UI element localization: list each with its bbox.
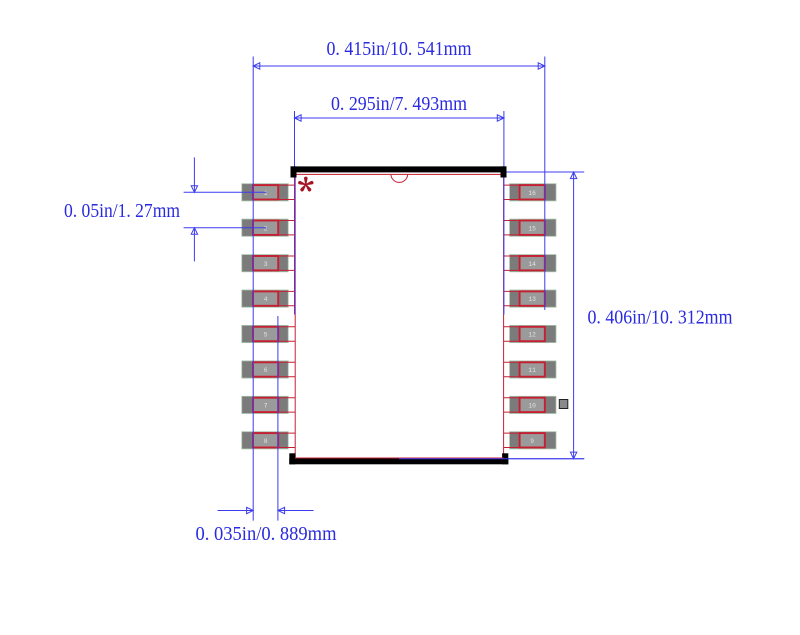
svg-text:15: 15	[528, 225, 536, 232]
svg-text:8: 8	[264, 438, 268, 445]
svg-text:4: 4	[264, 296, 268, 303]
svg-text:10: 10	[528, 403, 536, 410]
svg-text:13: 13	[528, 296, 536, 303]
svg-text:6: 6	[264, 367, 268, 374]
svg-text:0. 406in/10. 312mm: 0. 406in/10. 312mm	[588, 307, 733, 329]
svg-text:7: 7	[264, 403, 268, 410]
svg-text:0. 05in/1. 27mm: 0. 05in/1. 27mm	[64, 200, 180, 222]
svg-text:3: 3	[264, 261, 268, 268]
svg-text:16: 16	[528, 190, 536, 197]
svg-text:5: 5	[264, 332, 268, 339]
svg-text:12: 12	[528, 332, 536, 339]
svg-text:11: 11	[528, 367, 536, 374]
svg-text:9: 9	[530, 438, 534, 445]
svg-text:2: 2	[264, 225, 268, 232]
svg-text:14: 14	[528, 261, 536, 268]
svg-text:0. 295in/7. 493mm: 0. 295in/7. 493mm	[331, 93, 467, 115]
svg-text:0. 415in/10. 541mm: 0. 415in/10. 541mm	[327, 38, 472, 60]
svg-text:0. 035in/0. 889mm: 0. 035in/0. 889mm	[196, 523, 337, 545]
svg-text:1: 1	[264, 190, 268, 197]
